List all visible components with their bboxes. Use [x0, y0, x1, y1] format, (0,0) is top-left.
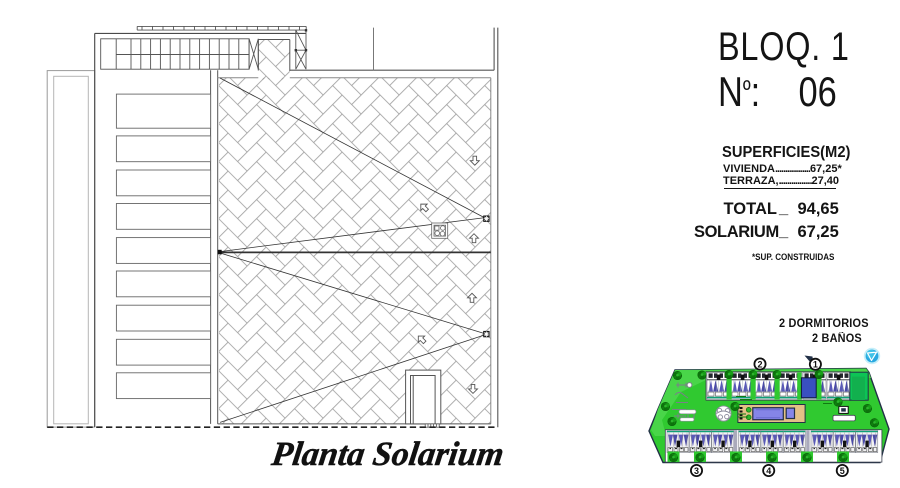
svg-text:4: 4: [766, 466, 771, 476]
svg-text:1: 1: [813, 360, 818, 370]
svg-text:2: 2: [757, 359, 762, 369]
svg-text:5: 5: [840, 466, 845, 476]
svg-text:3: 3: [694, 466, 699, 476]
